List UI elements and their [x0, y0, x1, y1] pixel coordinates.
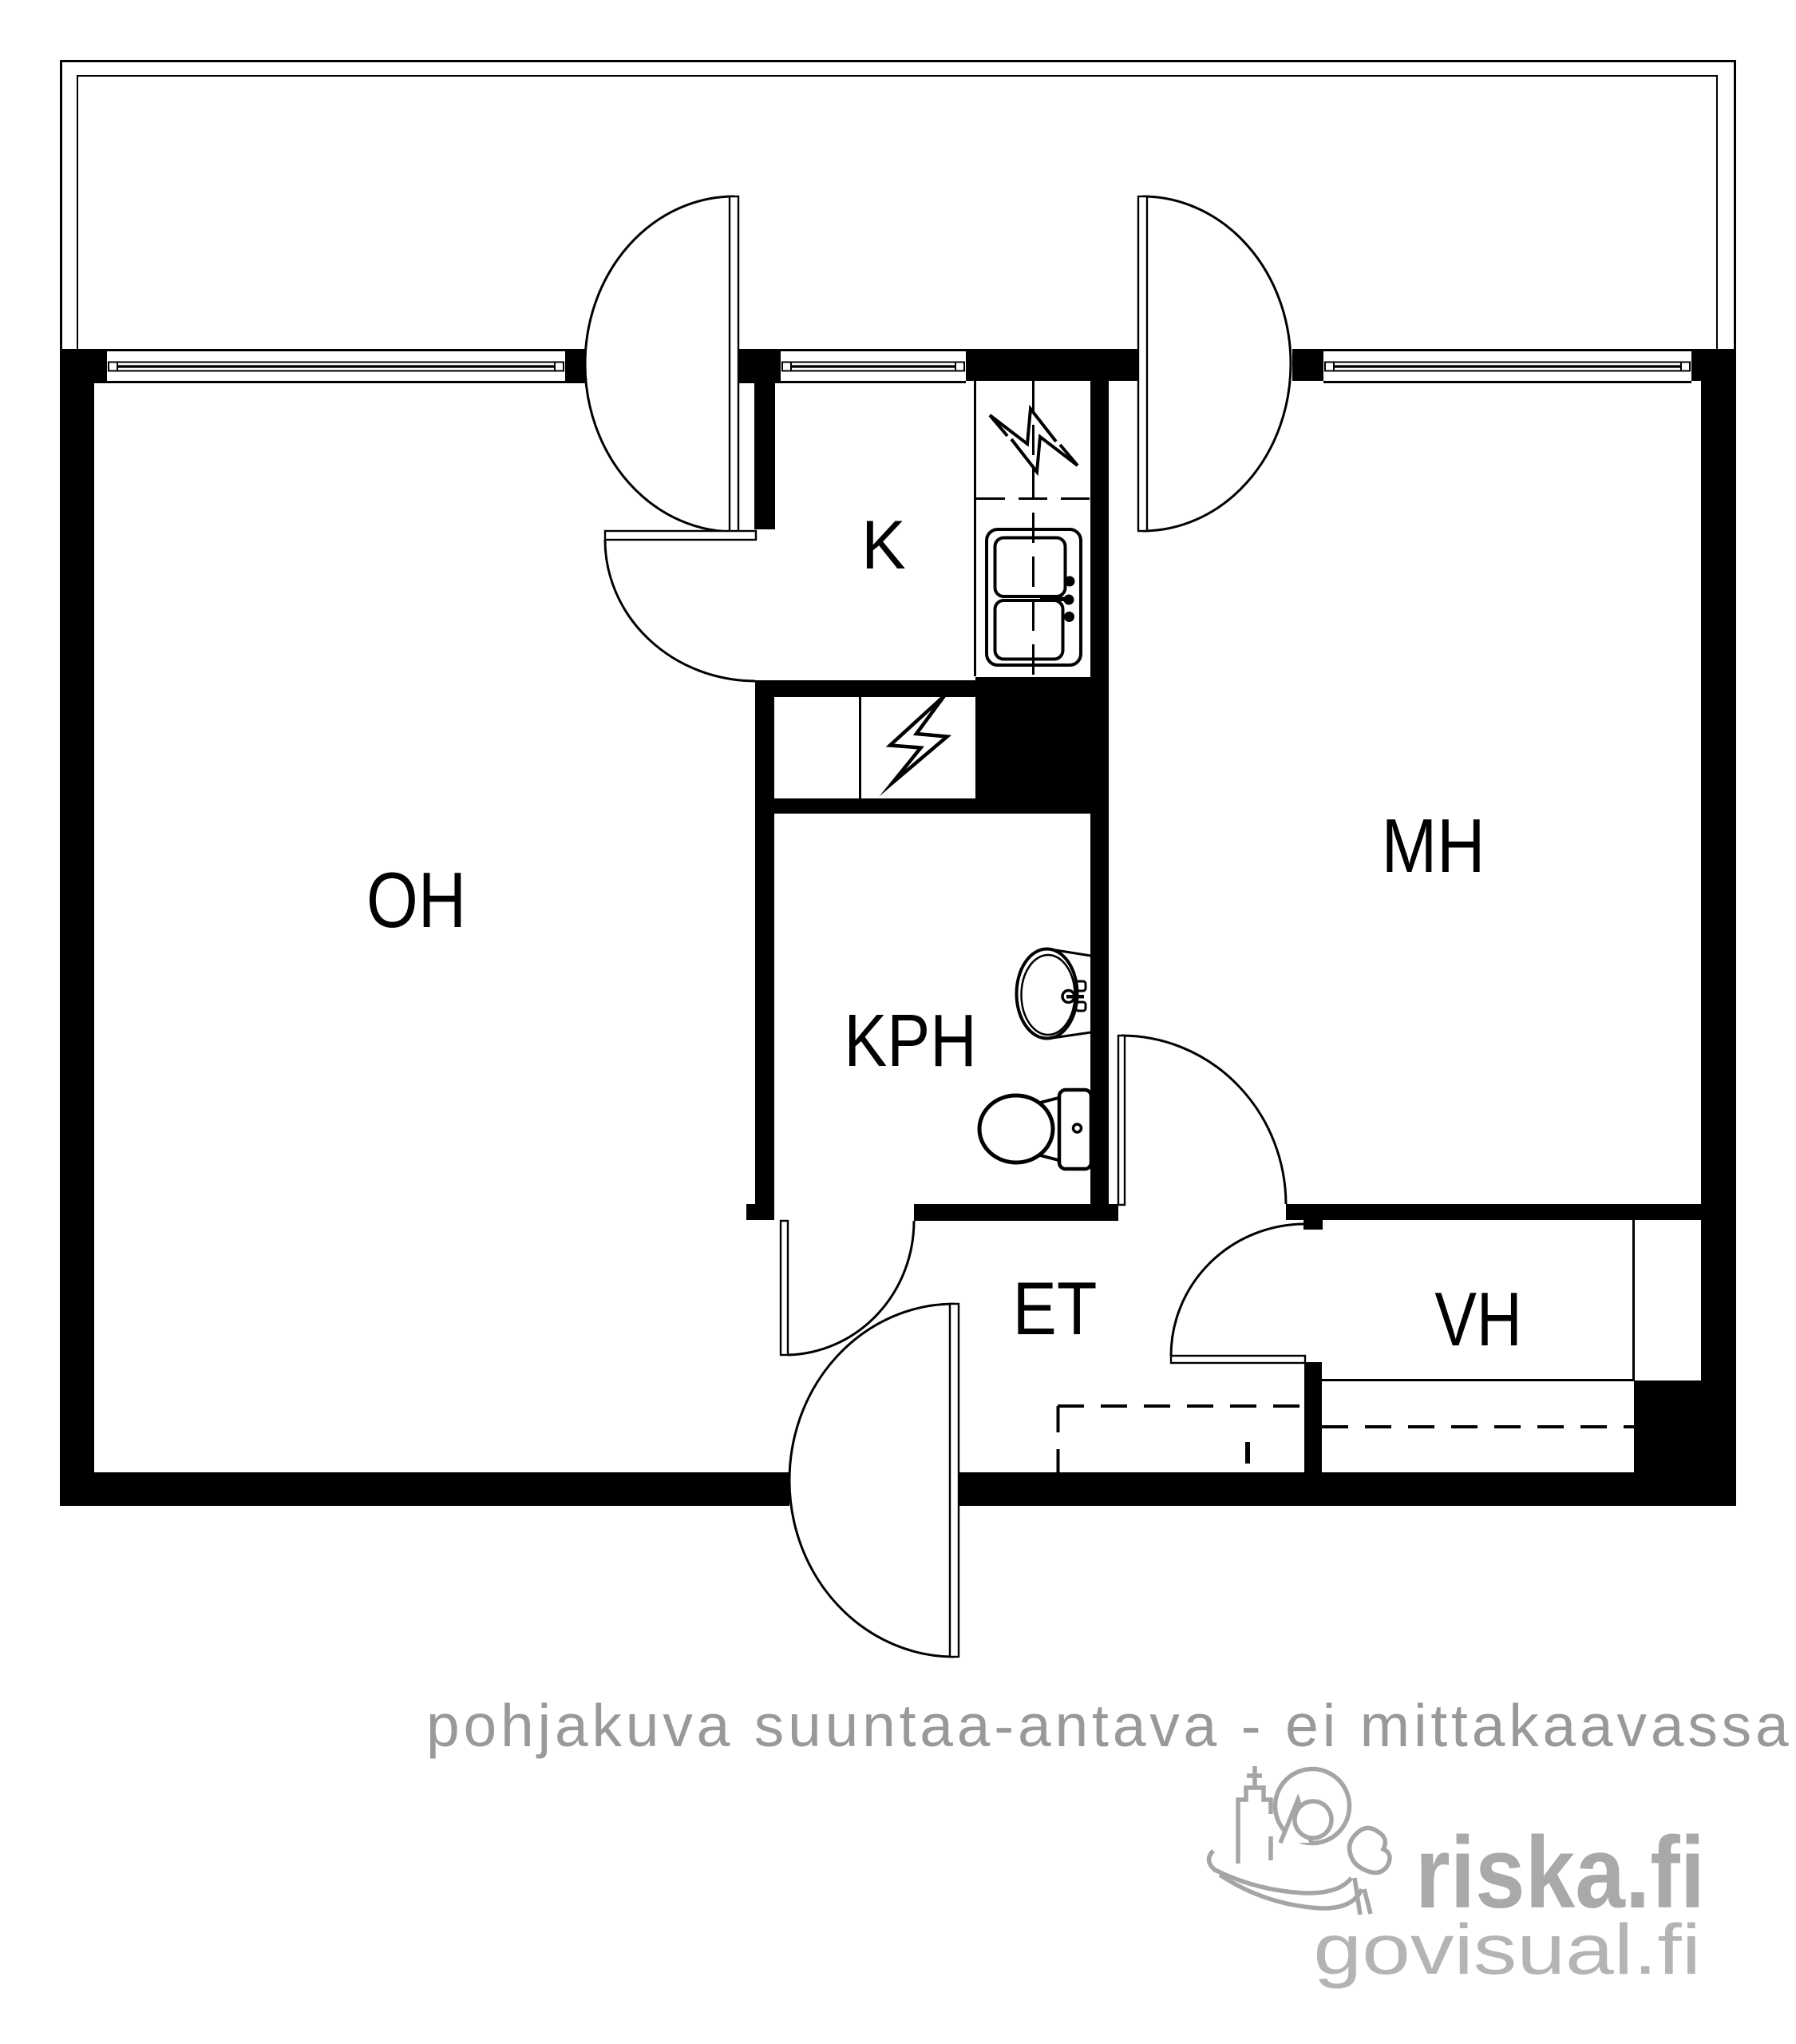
svg-text:OH: OH — [366, 858, 466, 945]
svg-text:VH: VH — [1434, 1277, 1521, 1362]
svg-text:govisual.fi: govisual.fi — [1313, 1910, 1701, 1989]
svg-text:KPH: KPH — [844, 1000, 976, 1082]
svg-text:ET: ET — [1013, 1266, 1098, 1350]
svg-text:K: K — [861, 506, 906, 583]
svg-text:pohjakuva suuntaa-antava - ei: pohjakuva suuntaa-antava - ei mittakaava… — [426, 1692, 1792, 1759]
svg-text:MH: MH — [1382, 804, 1485, 889]
